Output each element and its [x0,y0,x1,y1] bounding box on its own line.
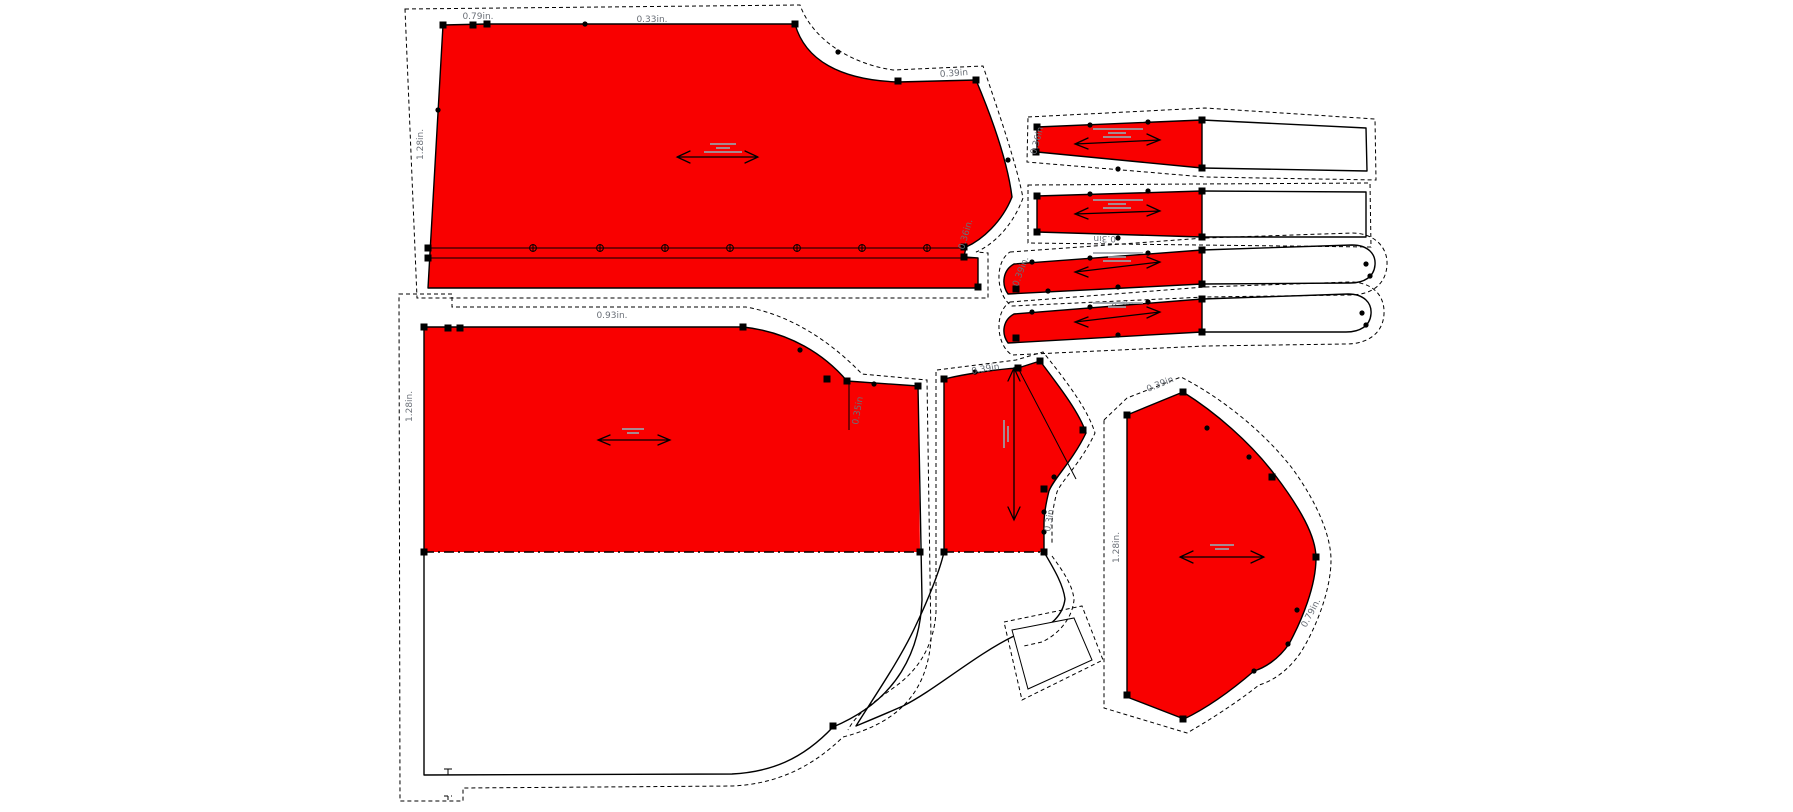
dim-label-top-left: 0.79in. [462,12,493,22]
piece-strip-1[interactable]: 0.36in [1027,108,1376,180]
strip2-red-fill[interactable] [1037,191,1202,237]
strip1-red-fill[interactable] [1037,120,1202,168]
dim-label-top: 0.33in. [636,15,667,25]
strip4-red-fill[interactable] [1004,299,1202,343]
piece-strip-4[interactable] [999,282,1384,355]
strip3-red-fill[interactable] [1004,250,1202,294]
pattern-drawing: 0.79in. 0.33in. 1.28in. 0.39in 0.36in. 0… [0,0,1793,812]
dim-label-bottom: 0.3in [1093,233,1116,243]
dim-label-left: 1.28in. [416,129,426,160]
strip1-outline-white [1202,120,1367,171]
pattern-layout-canvas: 0.79in. 0.33in. 1.28in. 0.39in 0.36in. 0… [0,0,1793,812]
dim-label-left: 1.28in. [1112,532,1122,563]
strip3-outline-white [1202,245,1375,284]
dim-label-top: 0.93in. [596,311,627,321]
hem-notch [444,769,452,775]
dim-label-left: 1.28in. [405,391,415,422]
dim-label-shoulder: 0.39in [940,68,969,80]
piece-back-bodice[interactable]: 0.79in. 0.33in. 1.28in. 0.39in 0.36in. [405,5,1023,298]
piece-front-bodice-upper-fill[interactable] [424,327,920,552]
strip4-outline-white [1202,294,1371,332]
piece-sleeve[interactable]: 0.39in 1.28in. 0.79in. [1104,375,1331,733]
strip2-outline-white [1202,191,1366,237]
piece-strip-2[interactable]: 0.3in [1028,183,1371,247]
hem-notch-allowance [444,796,452,801]
dim-label-top: 0.39in [1145,375,1175,395]
piece-sleeve-fill[interactable] [1127,392,1316,719]
